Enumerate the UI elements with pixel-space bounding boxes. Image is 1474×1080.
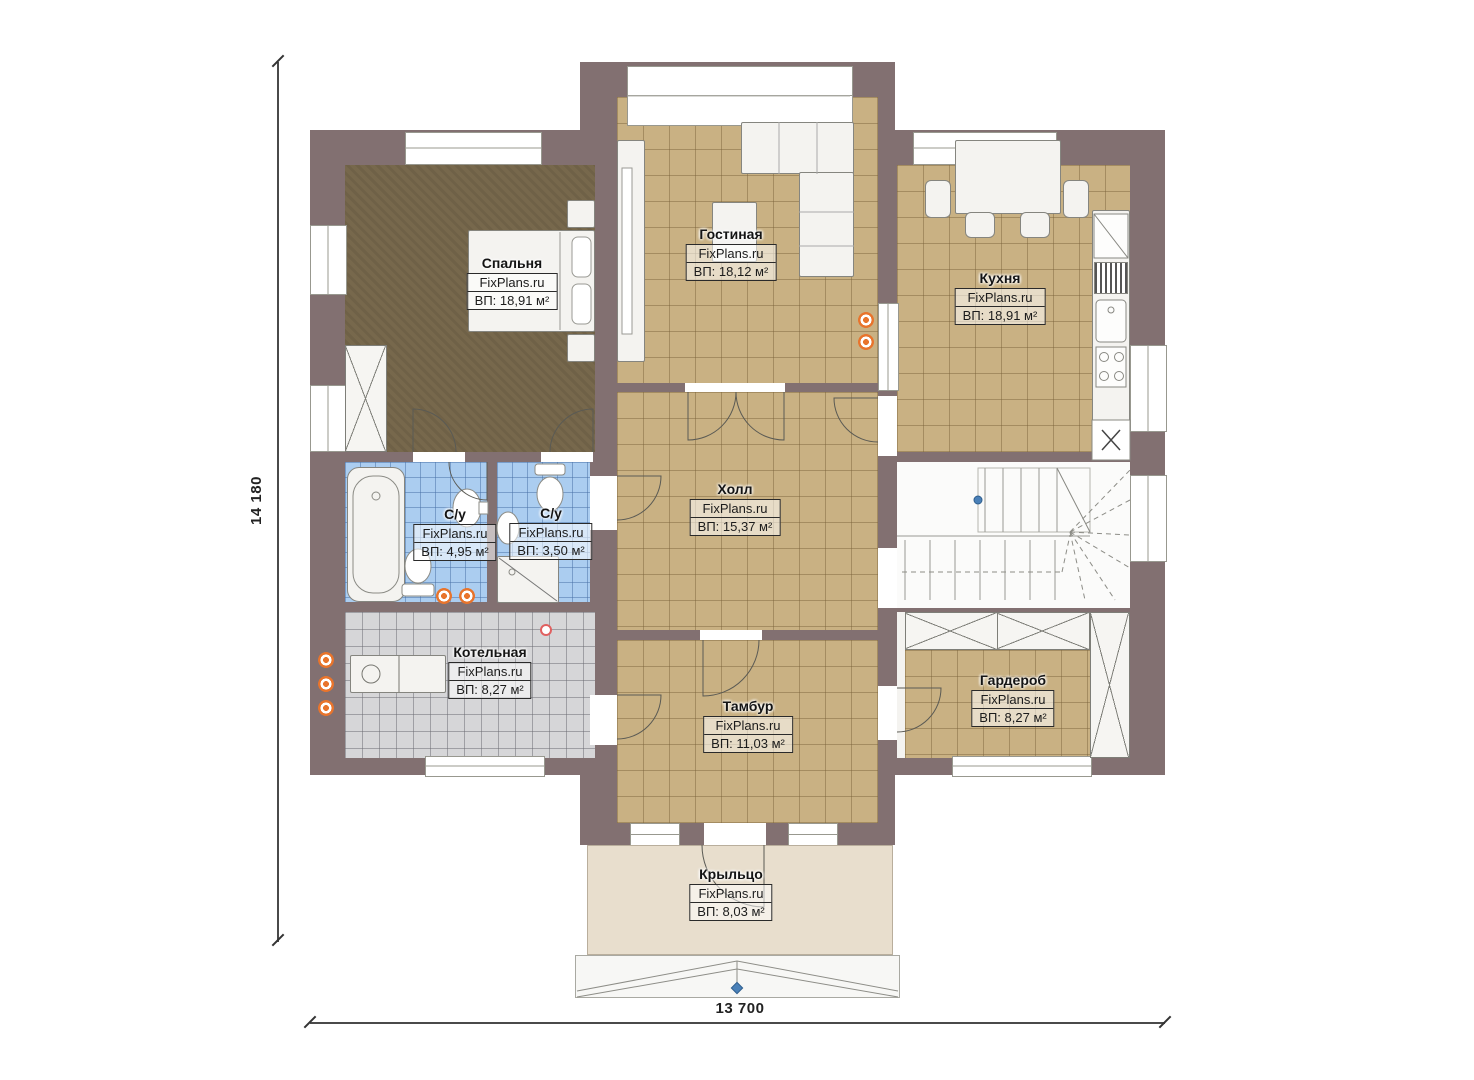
room-label-hall: Холл FixPlans.ru ВП: 15,37 м² [690,481,781,536]
tv-icon [622,168,632,334]
room-name: Тамбур [723,698,774,714]
porch-marker [731,982,742,993]
room-area: ВП: 11,03 м² [704,735,792,752]
room-area: ВП: 18,91 м² [468,292,557,309]
room-name: С/у [540,505,562,521]
watermark: FixPlans.ru [468,274,557,292]
room-label-boiler: Котельная FixPlans.ru ВП: 8,27 м² [448,644,531,699]
room-area: ВП: 8,27 м² [449,681,530,698]
room-name: Спальня [482,255,542,271]
room-name: Гостиная [699,226,762,242]
watermark: FixPlans.ru [510,524,591,542]
room-label-bath-1: С/у FixPlans.ru ВП: 4,95 м² [413,506,496,561]
dimension-line-vertical [277,62,279,942]
room-area: ВП: 18,12 м² [687,263,776,280]
watermark: FixPlans.ru [704,717,792,735]
room-name: Холл [717,481,752,497]
sofa-cushion-lines [779,122,854,246]
dimension-label-horizontal: 13 700 [700,1000,780,1017]
room-name: С/у [444,506,466,522]
room-area: ВП: 8,03 м² [690,903,771,920]
floor-plan-canvas: Спальня FixPlans.ru ВП: 18,91 м² Гостина… [0,0,1474,1080]
dimension-label-vertical: 14 180 [248,476,265,525]
bed-pillows [560,232,591,330]
room-area: ВП: 4,95 м² [414,543,495,560]
room-name: Кухня [980,270,1021,286]
room-area: ВП: 15,37 м² [691,518,780,535]
porch-step-lines [577,961,898,997]
watermark: FixPlans.ru [972,691,1053,709]
room-name: Гардероб [980,672,1046,688]
watermark: FixPlans.ru [690,885,771,903]
room-label-living: Гостиная FixPlans.ru ВП: 18,12 м² [686,226,777,281]
boiler-detail [362,656,399,692]
kitchen-appliances [1092,214,1130,460]
room-area: ВП: 3,50 м² [510,542,591,559]
dimension-line-horizontal [310,1022,1165,1024]
watermark: FixPlans.ru [414,525,495,543]
room-label-bath-2: С/у FixPlans.ru ВП: 3,50 м² [509,505,592,560]
room-label-vestibule: Тамбур FixPlans.ru ВП: 11,03 м² [703,698,793,753]
room-label-bedroom: Спальня FixPlans.ru ВП: 18,91 м² [467,255,558,310]
room-name: Котельная [453,644,526,660]
staircase-detail [897,468,1130,600]
room-label-porch: Крыльцо FixPlans.ru ВП: 8,03 м² [689,866,772,921]
room-area: ВП: 8,27 м² [972,709,1053,726]
watermark: FixPlans.ru [691,500,780,518]
room-name: Крыльцо [699,866,763,882]
room-label-kitchen: Кухня FixPlans.ru ВП: 18,91 м² [955,270,1046,325]
room-label-wardrobe: Гардероб FixPlans.ru ВП: 8,27 м² [971,672,1054,727]
watermark: FixPlans.ru [449,663,530,681]
room-area: ВП: 18,91 м² [956,307,1045,324]
watermark: FixPlans.ru [687,245,776,263]
watermark: FixPlans.ru [956,289,1045,307]
stair-marker [974,496,982,504]
